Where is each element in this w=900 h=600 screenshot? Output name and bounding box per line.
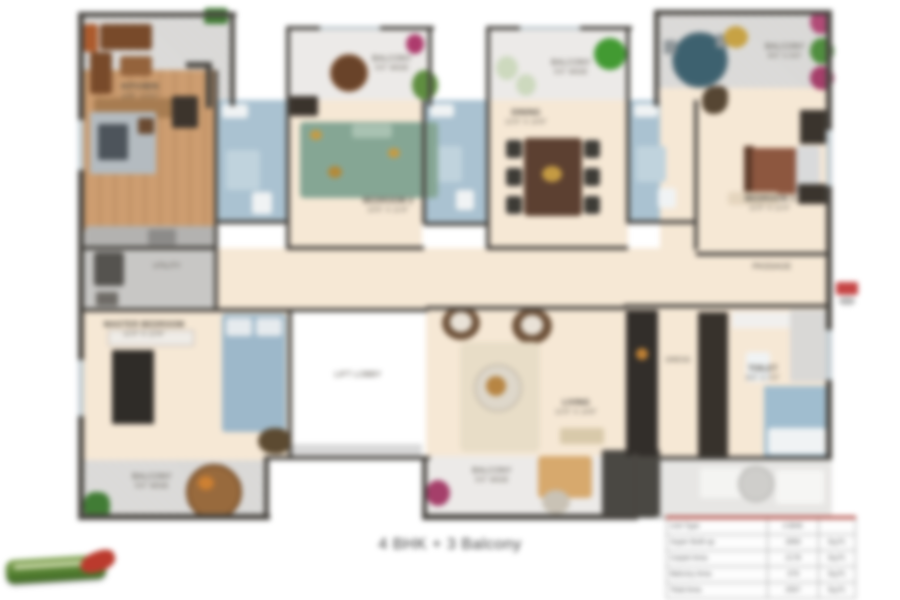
chair-icon xyxy=(506,140,522,158)
drain-icon xyxy=(738,466,774,502)
bathtub-icon xyxy=(768,428,826,454)
room-name: BALCONY xyxy=(551,58,591,67)
room-label-dress: DRESS xyxy=(656,356,700,365)
wc-icon xyxy=(658,188,676,208)
table-decor-icon xyxy=(486,376,506,396)
side-table-icon xyxy=(542,490,570,514)
room-dim: 5'0" WIDE xyxy=(458,476,526,485)
window-icon xyxy=(520,26,580,30)
table-cell-unit: Sq.Ft. xyxy=(819,551,856,567)
wall xyxy=(214,70,218,312)
room-label-passage: PASSAGE xyxy=(736,262,808,272)
wall xyxy=(216,220,288,224)
wall xyxy=(826,10,832,460)
marker-shadow xyxy=(839,297,855,305)
wc-icon xyxy=(252,192,272,214)
window-icon xyxy=(78,120,84,170)
plant-icon xyxy=(702,86,728,114)
plant-pink-icon xyxy=(406,34,424,54)
wall xyxy=(490,246,628,250)
table-cell-unit: Sq.Ft. xyxy=(819,583,856,599)
room-dim: 10'6" X 8'0" xyxy=(92,92,188,101)
staircase-block xyxy=(602,450,660,518)
room-dim: 5'0" WIDE xyxy=(120,482,184,491)
room-label-lift: LIFT LOBBY xyxy=(316,370,400,380)
room-label-utility: UTILITY xyxy=(132,262,202,271)
window-icon xyxy=(826,330,832,380)
cushion-icon xyxy=(388,148,400,158)
room-dim: 5'0" WIDE xyxy=(362,64,422,73)
room-dim: 11'0" X 12'6" xyxy=(96,330,192,339)
washer-icon xyxy=(94,252,124,286)
wall xyxy=(286,100,290,250)
room-label-living: LIVING 12'0" X 14'6" xyxy=(536,398,616,417)
wall xyxy=(632,454,638,518)
window-icon xyxy=(78,360,84,416)
room-name: BEDROOM 3 xyxy=(745,194,795,203)
chair-icon xyxy=(506,168,522,186)
wall xyxy=(626,26,630,106)
room-name: MASTER BEDROOM xyxy=(104,320,185,329)
area-statement-table: Unit Type 4 BHK Super Built-up 2850 Sq.F… xyxy=(666,516,856,599)
shower-mat-icon xyxy=(226,150,260,190)
cushion-icon xyxy=(310,130,322,140)
room-dim: 12'0" X 14'6" xyxy=(536,408,616,417)
bench-icon xyxy=(290,96,318,116)
table-cell-label: Total Area xyxy=(667,583,768,599)
table-cell-value: 4 BHK xyxy=(768,518,819,535)
wall xyxy=(84,308,288,312)
wall xyxy=(486,100,490,250)
cushion-icon xyxy=(328,166,342,178)
room-label-bedroom2: BEDROOM 2 10'0" X 11'6" xyxy=(340,196,436,215)
plant-icon xyxy=(412,70,438,100)
floorplan-scene: KITCHEN 10'6" X 8'0" BEDROOM 2 10'0" X 1… xyxy=(0,0,900,600)
wall xyxy=(486,26,490,106)
flowers-icon xyxy=(198,476,214,490)
wall xyxy=(230,12,235,106)
pillow-icon xyxy=(256,318,282,336)
wall xyxy=(632,456,832,460)
wall xyxy=(78,12,84,518)
wall xyxy=(428,26,432,106)
wardrobe-icon xyxy=(800,110,828,144)
appliance-icon xyxy=(138,118,154,134)
table-cell-value: 2850 xyxy=(768,535,819,551)
centerpiece-icon xyxy=(542,166,562,182)
table-cell-label: Carpet Area xyxy=(667,551,768,567)
wall xyxy=(694,100,698,250)
balcony-label: BALCONY 8'0" X 6'0" xyxy=(756,42,814,61)
north-marker-icon xyxy=(836,282,858,295)
room-label-bedroom3: BEDROOM 3 11'0" X 12'0" xyxy=(722,194,818,213)
chair-icon xyxy=(584,168,600,186)
wall xyxy=(624,304,832,308)
table-cell-value: 2178 xyxy=(768,551,819,567)
room-dim: 10'0" X 11'6" xyxy=(340,206,436,215)
room-label-dining: DINING 12'0" X 10'6" xyxy=(494,108,558,127)
wardrobe-strip-icon xyxy=(626,310,658,456)
balcony-label: BALCONY 5'0" WIDE xyxy=(540,58,602,77)
room-dim: 5'0" WIDE xyxy=(540,68,602,77)
planter-icon xyxy=(186,464,242,520)
plant-pot-icon xyxy=(84,24,98,52)
sink-icon xyxy=(148,229,176,245)
room-name: BALCONY xyxy=(472,466,512,475)
chair-icon xyxy=(584,196,600,214)
stove-icon xyxy=(98,124,128,160)
room-name: BEDROOM 2 xyxy=(363,196,413,205)
balcony-bottom-mid-floor xyxy=(424,456,632,518)
wall xyxy=(206,62,212,108)
wall xyxy=(422,458,427,518)
table-cell-value: 2557 xyxy=(768,583,819,599)
tv-unit-icon xyxy=(112,350,154,424)
room-name: TOILET xyxy=(748,364,778,373)
table-cell-value: 379 xyxy=(768,567,819,583)
plant-icon xyxy=(496,56,518,80)
balcony-label: BALCONY 5'0" WIDE xyxy=(120,472,184,491)
table-cell-unit: Sq.Ft. xyxy=(819,535,856,551)
room-name: LIFT LOBBY xyxy=(334,370,381,379)
window-icon xyxy=(320,26,380,30)
wall xyxy=(424,222,488,226)
room-name: UTILITY xyxy=(153,263,180,270)
wall xyxy=(84,246,214,250)
table-row: Carpet Area 2178 Sq.Ft. xyxy=(667,551,856,567)
ac-unit-icon xyxy=(700,468,742,498)
table-row: Super Built-up 2850 Sq.Ft. xyxy=(667,535,856,551)
coffee-table-icon xyxy=(120,56,152,76)
balcony-label: BALCONY 5'0" WIDE xyxy=(458,466,526,485)
table-row: Total Area 2557 Sq.Ft. xyxy=(667,583,856,599)
room-name: BALCONY xyxy=(132,472,172,481)
plan-caption: 4 BHK + 3 Balcony xyxy=(300,536,600,554)
wall xyxy=(654,10,659,106)
table-cell-label: Super Built-up xyxy=(667,535,768,551)
washbasin-icon xyxy=(222,104,248,118)
outdoor-sofa-icon xyxy=(538,456,592,498)
table-row: Balcony Area 379 Sq.Ft. xyxy=(667,567,856,583)
room-name: LIVING xyxy=(562,398,590,407)
room-dim: 11'0" X 12'0" xyxy=(722,204,818,213)
shower-mat-icon xyxy=(636,146,666,182)
wall xyxy=(264,458,269,518)
table-cell-unit: Sq.Ft. xyxy=(819,567,856,583)
room-label-toilet: TOILET 8'0" X 5'0" xyxy=(732,364,794,383)
ac-unit-icon xyxy=(776,470,824,504)
wall xyxy=(288,308,428,312)
chair-icon xyxy=(506,196,522,214)
wall xyxy=(626,100,630,224)
builder-logo xyxy=(5,547,113,593)
room-dim: 8'0" X 6'0" xyxy=(756,52,814,61)
lift-lobby-floor xyxy=(288,312,434,458)
plant-icon xyxy=(516,74,536,96)
wall xyxy=(288,246,424,250)
utility-shelf-icon xyxy=(96,292,118,306)
chair-icon xyxy=(664,40,676,54)
wall xyxy=(422,514,638,520)
room-name: DINING xyxy=(511,108,540,117)
wall xyxy=(264,456,430,460)
shower-icon xyxy=(790,310,830,382)
pillow-icon xyxy=(352,124,392,138)
wall xyxy=(78,12,236,17)
room-dim: 8'0" X 5'0" xyxy=(732,374,794,383)
wall xyxy=(696,252,830,256)
decor-icon xyxy=(636,348,648,360)
wall xyxy=(628,220,696,224)
table-cell-label: Unit Type xyxy=(667,518,768,535)
wall xyxy=(426,306,626,310)
wardrobe-strip-icon xyxy=(698,312,728,458)
room-name: BALCONY xyxy=(372,54,412,63)
wall xyxy=(78,514,270,520)
room-name: DRESS xyxy=(665,357,690,364)
chair-icon xyxy=(584,140,600,158)
room-name: KITCHEN xyxy=(122,82,159,91)
table-row: Unit Type 4 BHK xyxy=(667,518,856,535)
armchair-cushion-icon xyxy=(521,315,543,335)
room-label-master: MASTER BEDROOM 11'0" X 12'6" xyxy=(96,320,192,339)
pillow-icon xyxy=(226,318,252,336)
plant-icon xyxy=(258,428,290,454)
washbasin-icon xyxy=(430,104,454,117)
wall xyxy=(286,26,290,106)
room-dim: 12'0" X 10'6" xyxy=(494,118,558,127)
room-name: BALCONY xyxy=(765,42,805,51)
room-name: PASSAGE xyxy=(752,262,791,271)
floorplan-screenshot: KITCHEN 10'6" X 8'0" BEDROOM 2 10'0" X 1… xyxy=(0,0,900,600)
room-label-kitchen: KITCHEN 10'6" X 8'0" xyxy=(92,82,188,101)
plant-gold-icon xyxy=(724,26,748,48)
console-icon xyxy=(560,428,604,444)
wall xyxy=(654,10,832,15)
wc-icon xyxy=(456,190,474,210)
table-cell-label: Balcony Area xyxy=(667,567,768,583)
balcony-label: BALCONY 5'0" WIDE xyxy=(362,54,422,73)
armchair-cushion-icon xyxy=(450,312,472,332)
table-cell-unit xyxy=(819,518,856,535)
sofa-icon xyxy=(100,24,152,50)
plant-pink-icon xyxy=(426,480,450,506)
window-icon xyxy=(826,130,832,186)
